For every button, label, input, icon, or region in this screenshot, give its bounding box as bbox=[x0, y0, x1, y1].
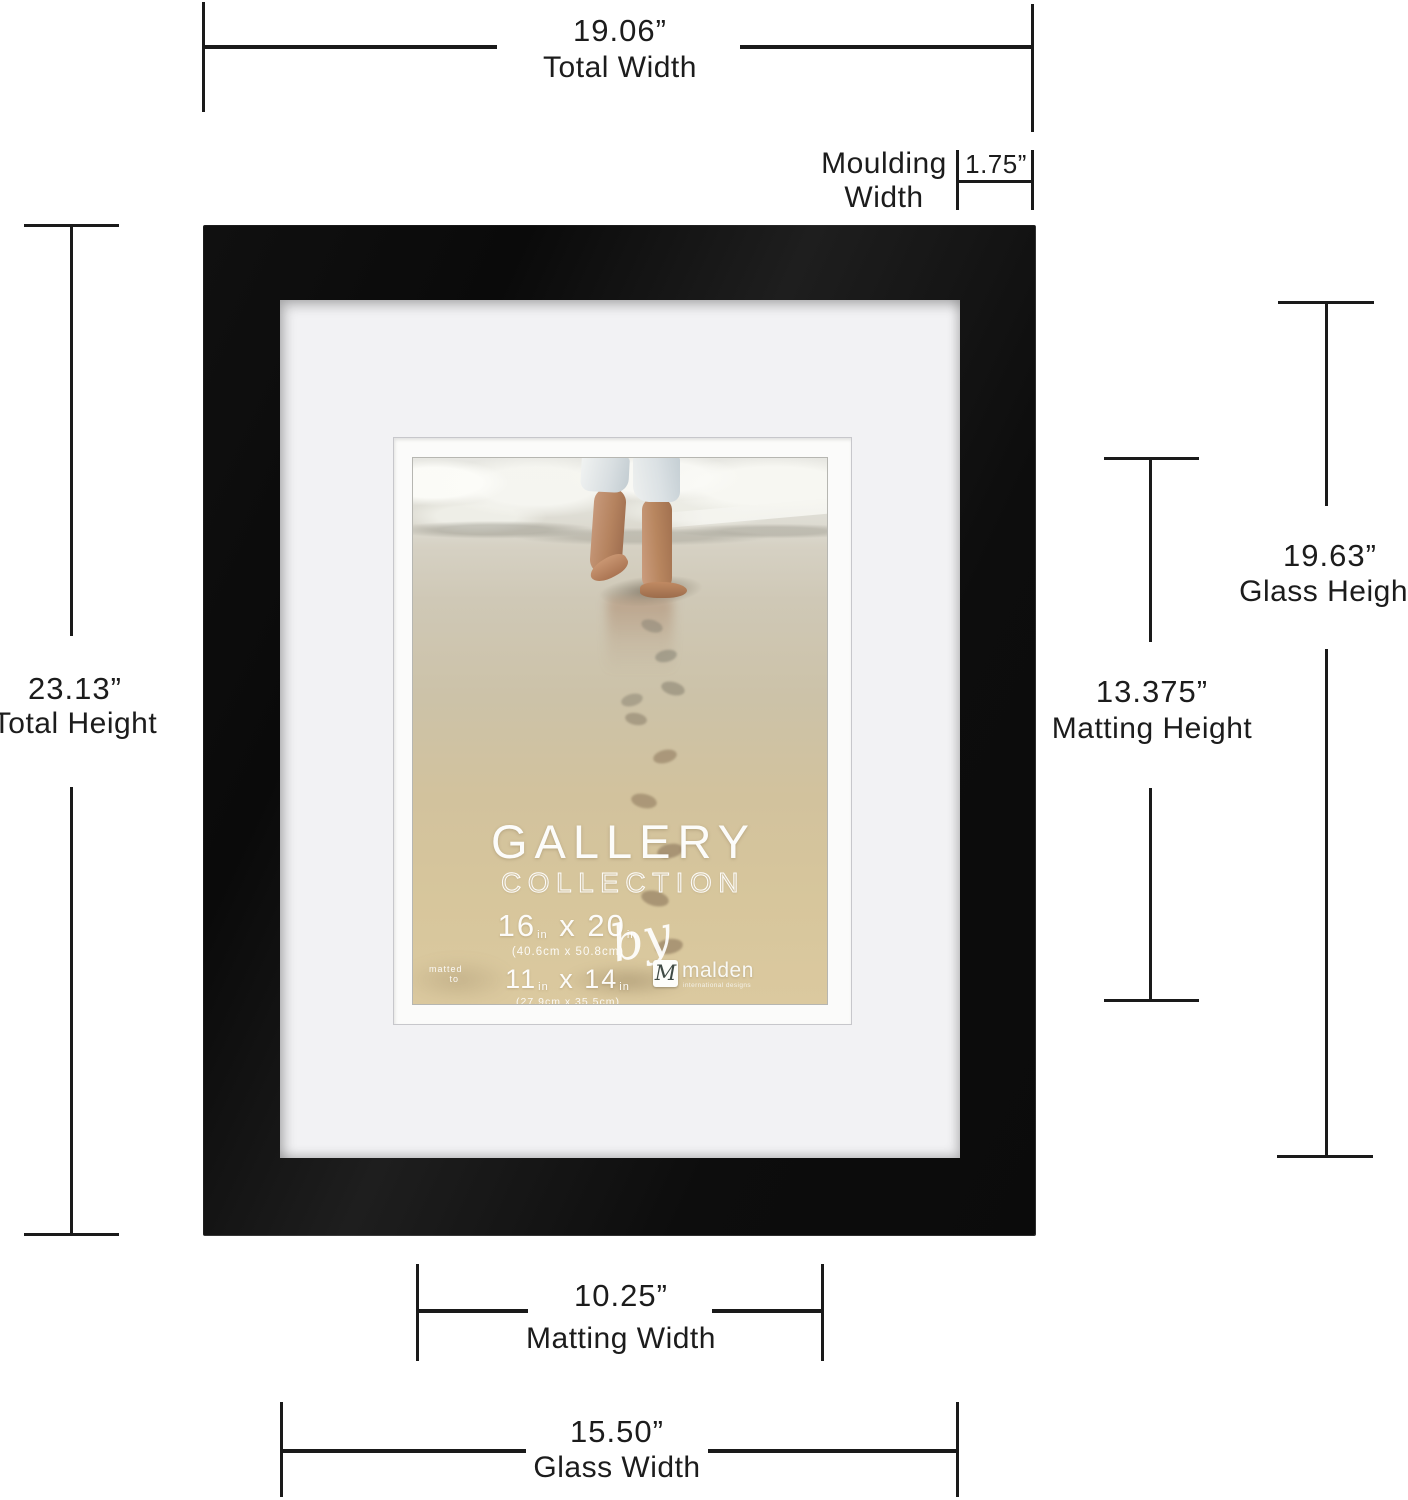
dim-label: Matting Height bbox=[1052, 712, 1252, 746]
person-right-leg bbox=[642, 498, 672, 590]
dim-line bbox=[70, 787, 73, 1236]
size-unit: in bbox=[537, 929, 548, 941]
picture-frame-mat: GALLERY COLLECTION 16in x 20in (40.6cm x… bbox=[280, 300, 960, 1158]
brand-lockup: M malden international designs bbox=[653, 959, 773, 991]
mat-opening-bevel: GALLERY COLLECTION 16in x 20in (40.6cm x… bbox=[393, 437, 852, 1025]
size-w: 11 bbox=[505, 964, 537, 994]
malden-monogram-icon: M bbox=[653, 960, 678, 987]
size-h: 14 bbox=[584, 964, 618, 994]
dim-line bbox=[1149, 457, 1152, 642]
dim-value: 10.25” bbox=[574, 1279, 668, 1313]
dim-line bbox=[1325, 649, 1328, 1158]
brand-name: malden bbox=[682, 959, 754, 983]
matted-word: matted bbox=[429, 964, 463, 974]
dim-label: Total Width bbox=[543, 51, 697, 85]
dim-line bbox=[1325, 301, 1328, 506]
brand-tagline: international designs bbox=[683, 982, 751, 989]
footprint bbox=[630, 791, 658, 810]
size-sep: x bbox=[559, 964, 575, 994]
size-unit: in bbox=[538, 981, 549, 993]
dim-value: 19.63” bbox=[1283, 539, 1377, 573]
size-w: 16 bbox=[498, 908, 536, 943]
dim-label: Width bbox=[844, 181, 923, 215]
dim-label: Moulding bbox=[821, 147, 947, 181]
print-size-primary-metric: (40.6cm x 50.8cm) bbox=[413, 946, 723, 958]
footprint bbox=[660, 679, 687, 698]
dim-value: 13.375” bbox=[1096, 675, 1208, 709]
dim-value: 15.50” bbox=[570, 1415, 664, 1449]
to-word: to bbox=[449, 974, 459, 984]
print-subtitle: COLLECTION bbox=[413, 867, 827, 899]
dim-line bbox=[740, 45, 1034, 49]
print-title: GALLERY bbox=[413, 814, 827, 869]
dim-tick bbox=[1031, 4, 1034, 132]
dim-line bbox=[712, 1309, 824, 1313]
footprint bbox=[620, 691, 644, 708]
frame-photo-insert: GALLERY COLLECTION 16in x 20in (40.6cm x… bbox=[413, 458, 827, 1004]
dim-line bbox=[956, 180, 1034, 183]
size-sep: x bbox=[559, 908, 577, 943]
footprint bbox=[652, 747, 678, 765]
dim-label: Glass Height bbox=[1239, 575, 1408, 609]
size-unit: in bbox=[619, 981, 630, 993]
dim-line bbox=[70, 224, 73, 636]
dim-value: 19.06” bbox=[573, 14, 667, 48]
dim-line bbox=[202, 45, 497, 49]
dim-label: Matting Width bbox=[526, 1322, 716, 1356]
dim-label: Total Height bbox=[0, 707, 157, 741]
pant-leg-left bbox=[580, 458, 630, 493]
footprint bbox=[624, 711, 648, 727]
dim-line bbox=[708, 1449, 959, 1453]
dim-tick bbox=[202, 2, 205, 112]
diagram-canvas: 19.06” Total Width Moulding Width 1.75” … bbox=[0, 0, 1408, 1500]
dim-line bbox=[1149, 788, 1152, 1002]
picture-frame-moulding: GALLERY COLLECTION 16in x 20in (40.6cm x… bbox=[203, 225, 1036, 1236]
pant-leg-right bbox=[633, 458, 680, 502]
dim-line bbox=[280, 1449, 526, 1453]
dim-value: 23.13” bbox=[28, 672, 122, 706]
print-matted-prefix: mattedto bbox=[429, 964, 459, 984]
dim-line bbox=[416, 1309, 528, 1313]
person-right-foot bbox=[640, 582, 687, 598]
print-size-matted-metric: (27.9cm x 35.5cm) bbox=[413, 996, 723, 1004]
dim-label: Glass Width bbox=[533, 1451, 700, 1485]
dim-value: 1.75” bbox=[965, 150, 1027, 178]
print-size-primary: 16in x 20in bbox=[413, 908, 723, 944]
